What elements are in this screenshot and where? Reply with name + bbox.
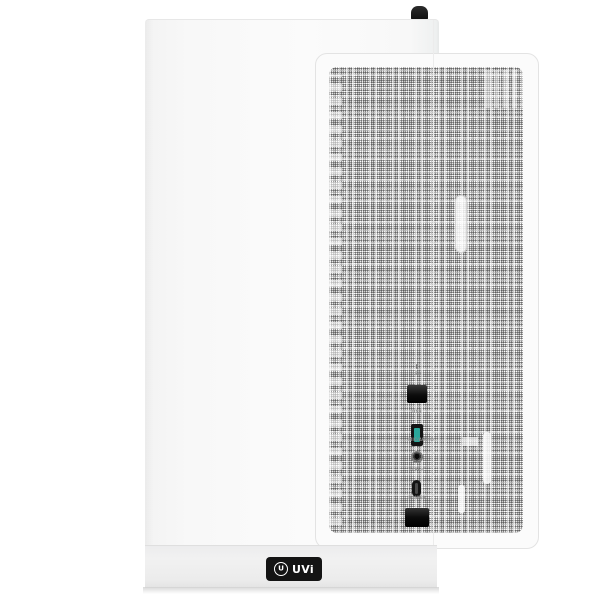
brand-badge: U UVi xyxy=(266,557,322,581)
mesh-highlight xyxy=(458,485,465,513)
led-button xyxy=(407,385,427,403)
indicator-dot xyxy=(416,364,418,369)
usb-c-port xyxy=(412,480,421,497)
led-label: LED xyxy=(408,372,426,376)
type-c-label: TYPE-C xyxy=(408,468,426,472)
brand-monogram-letter: U xyxy=(278,565,284,572)
usb-a-port xyxy=(411,424,423,446)
mesh-highlight xyxy=(329,75,342,525)
front-io-panel: LED USB MIC/AUDIO TYPE-C POWER xyxy=(395,360,439,532)
mic-audio-label: MIC/AUDIO xyxy=(408,438,426,442)
brand-logo-text: UVi xyxy=(292,563,314,576)
usb-label: USB xyxy=(408,410,426,414)
power-label: POWER xyxy=(408,496,426,500)
audio-jack-port xyxy=(411,451,423,463)
power-button xyxy=(405,508,429,527)
brand-monogram-icon: U xyxy=(274,562,288,576)
case-base: U UVi xyxy=(145,545,437,588)
product-photo: LED USB MIC/AUDIO TYPE-C POWER U UVi xyxy=(0,0,600,600)
mesh-highlight xyxy=(455,195,467,253)
usb-c-slot xyxy=(415,483,418,494)
mesh-highlight xyxy=(463,437,478,446)
mesh-highlight xyxy=(483,432,491,484)
floor-shadow xyxy=(143,587,439,594)
mesh-highlight xyxy=(485,70,523,108)
